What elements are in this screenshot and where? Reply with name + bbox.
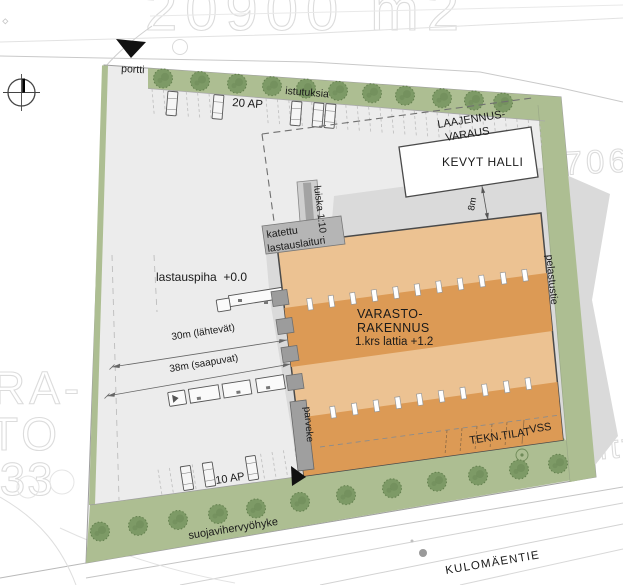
tree-icon	[291, 492, 310, 511]
tree-icon	[549, 454, 568, 473]
tree-icon	[469, 466, 488, 485]
car-icon	[312, 103, 324, 128]
tree-icon	[263, 77, 282, 96]
warehouse-label-line3: 1.krs lattia +1.2	[355, 336, 433, 348]
tree-icon	[428, 472, 447, 491]
dock-pad	[276, 317, 294, 334]
light-hall-label: KEVYT HALLI	[442, 155, 523, 169]
dim-8m-label: 8m	[466, 197, 479, 212]
car-icon	[290, 101, 302, 126]
tree-icon	[91, 522, 110, 541]
tree-icon	[329, 81, 348, 100]
tree-icon	[191, 72, 210, 91]
ghost-left-text-3: 733	[0, 453, 55, 505]
warehouse-label-line2: RAKENNUS	[357, 321, 430, 335]
tree-icon	[154, 69, 173, 88]
tree-icon	[169, 510, 188, 529]
site-plan: 20900 m2 5706 tontti RA- TO 733	[0, 0, 623, 585]
street-label: KULOMÄENTIE	[445, 549, 541, 577]
tree-icon	[247, 499, 266, 518]
gate-arrow-top-icon	[116, 39, 146, 58]
ghost-left-text-1: RA-	[0, 362, 83, 414]
tree-icon	[363, 84, 382, 103]
car-icon	[166, 91, 178, 116]
tree-icon	[396, 86, 415, 105]
dock-pad	[271, 289, 289, 306]
dock-pad	[286, 373, 304, 390]
north-arrow-icon	[3, 74, 40, 111]
tree-icon	[228, 74, 247, 93]
loading-yard-label: lastauspiha +0.0	[156, 270, 247, 284]
gate-label: portti	[121, 63, 145, 76]
tree-icon	[510, 460, 529, 479]
tree-icon	[337, 486, 356, 505]
dock-pad	[281, 345, 299, 362]
tree-icon	[433, 89, 452, 108]
parking-top-label: 20 AP	[232, 97, 264, 111]
survey-dot	[419, 549, 427, 557]
tree-icon	[129, 516, 148, 535]
tree-icon	[209, 505, 228, 524]
warehouse-label-line1: VARASTO-	[357, 307, 423, 321]
car-icon	[212, 95, 224, 120]
tree-icon	[383, 479, 402, 498]
